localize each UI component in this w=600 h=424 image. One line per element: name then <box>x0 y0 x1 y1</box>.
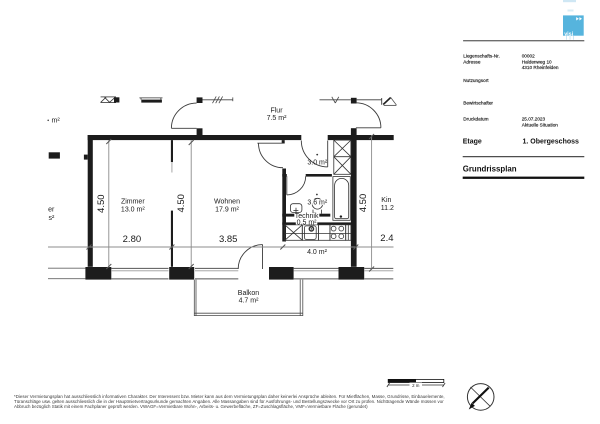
svg-text:Aktuelle Situation: Aktuelle Situation <box>522 123 559 128</box>
svg-text:7.5 m²: 7.5 m² <box>267 115 288 122</box>
svg-text:Zimmer: Zimmer <box>121 199 145 206</box>
svg-text:2.4: 2.4 <box>380 233 393 244</box>
svg-text:Abbruch bezüglich Statik mit e: Abbruch bezüglich Statik mit einem Fachp… <box>14 404 368 409</box>
svg-text:Adresse: Adresse <box>463 59 481 64</box>
svg-text:er: er <box>48 207 55 214</box>
svg-text:17.9 m²: 17.9 m² <box>215 206 239 213</box>
svg-text:25.07.2023: 25.07.2023 <box>522 117 546 122</box>
svg-text:3.85: 3.85 <box>219 234 238 245</box>
svg-text:s²: s² <box>49 215 56 222</box>
svg-text:visi: visi <box>564 31 573 37</box>
svg-text:2 m: 2 m <box>412 383 420 388</box>
svg-text:Bewirtschafter: Bewirtschafter <box>463 100 493 105</box>
svg-text:Liegenschafts-Nr.: Liegenschafts-Nr. <box>463 53 499 58</box>
svg-text:Kin: Kin <box>381 197 391 204</box>
svg-text:Haldenweg 10: Haldenweg 10 <box>522 59 552 64</box>
svg-text:4310 Rheinfelden: 4310 Rheinfelden <box>522 65 559 70</box>
svg-text:4.7 m²: 4.7 m² <box>239 297 260 304</box>
svg-text:3.0 m²: 3.0 m² <box>307 159 328 166</box>
svg-text:4.0 m²: 4.0 m² <box>307 249 328 256</box>
svg-text:2.80: 2.80 <box>123 234 142 245</box>
svg-text:11.2: 11.2 <box>381 205 394 212</box>
svg-text:1. Obergeschoss: 1. Obergeschoss <box>523 138 580 145</box>
svg-text:Flur: Flur <box>270 107 283 114</box>
svg-text:Etage: Etage <box>463 138 482 145</box>
svg-text:4.50: 4.50 <box>176 194 187 213</box>
svg-text:Wohnen: Wohnen <box>214 199 240 206</box>
svg-text:13.0 m²: 13.0 m² <box>121 206 145 213</box>
svg-text:Grundrissplan: Grundrissplan <box>463 165 517 174</box>
svg-text:3.6 m²: 3.6 m² <box>307 200 328 207</box>
svg-text:4.50: 4.50 <box>96 194 107 213</box>
svg-text:4.50: 4.50 <box>358 194 369 213</box>
svg-text:0.5 m²: 0.5 m² <box>297 219 318 226</box>
svg-text:00002: 00002 <box>522 53 535 58</box>
svg-text:m²: m² <box>52 118 61 125</box>
svg-text:Balkon: Balkon <box>238 290 260 297</box>
svg-text:Nutzungsort: Nutzungsort <box>463 78 489 83</box>
svg-text:Druckdatum: Druckdatum <box>463 117 488 122</box>
